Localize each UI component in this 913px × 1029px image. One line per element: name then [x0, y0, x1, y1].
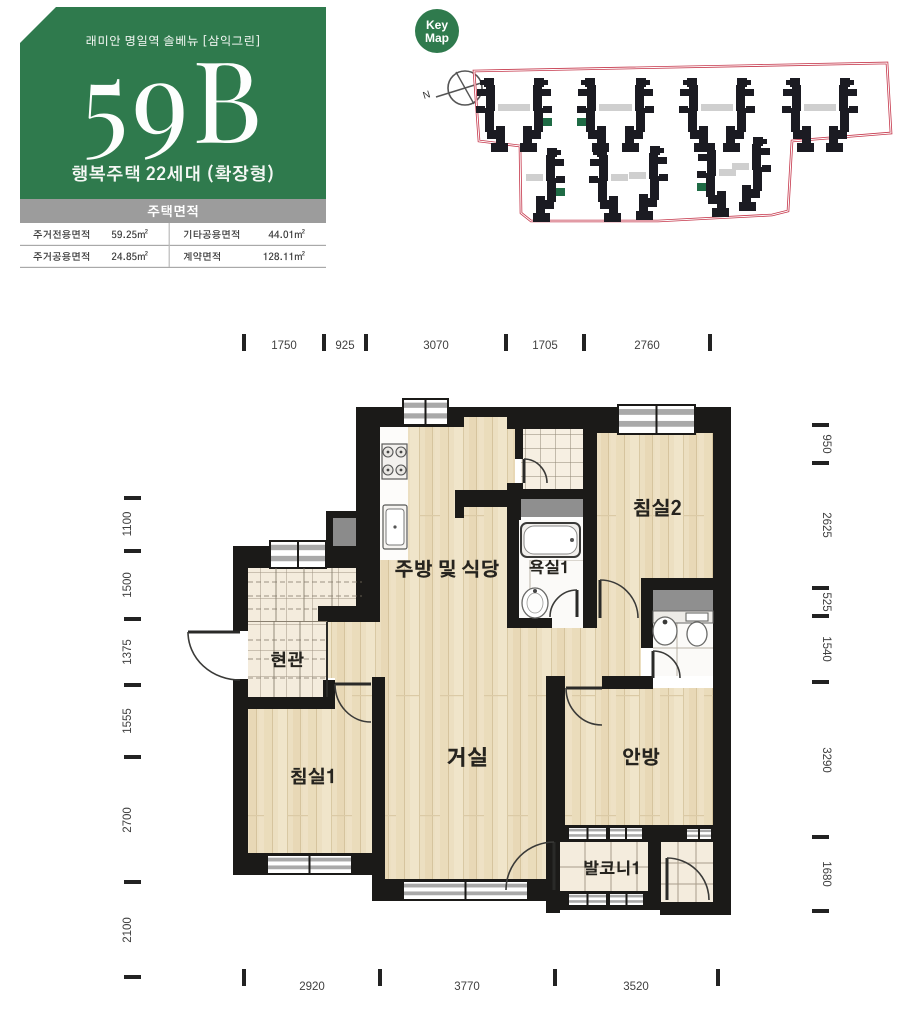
svg-text:2100: 2100: [122, 917, 134, 943]
svg-text:3520: 3520: [623, 981, 649, 993]
svg-text:3070: 3070: [423, 340, 449, 352]
svg-text:1540: 1540: [820, 636, 832, 662]
svg-text:2700: 2700: [122, 807, 134, 833]
svg-text:525: 525: [820, 592, 832, 611]
svg-text:1375: 1375: [122, 639, 134, 665]
svg-text:3770: 3770: [454, 981, 480, 993]
svg-text:1100: 1100: [122, 512, 134, 537]
svg-text:N: N: [422, 89, 432, 102]
svg-text:1555: 1555: [122, 708, 134, 734]
svg-text:3290: 3290: [820, 747, 832, 773]
svg-text:1705: 1705: [532, 340, 558, 352]
svg-text:1680: 1680: [820, 861, 832, 887]
svg-text:1750: 1750: [271, 340, 297, 352]
svg-text:950: 950: [820, 434, 832, 453]
svg-text:2760: 2760: [634, 340, 660, 352]
svg-text:1500: 1500: [122, 572, 134, 598]
svg-text:Key: Key: [426, 18, 448, 32]
svg-text:925: 925: [335, 340, 354, 352]
svg-text:Map: Map: [425, 31, 449, 45]
svg-text:2625: 2625: [820, 512, 832, 538]
svg-text:2920: 2920: [299, 981, 325, 993]
